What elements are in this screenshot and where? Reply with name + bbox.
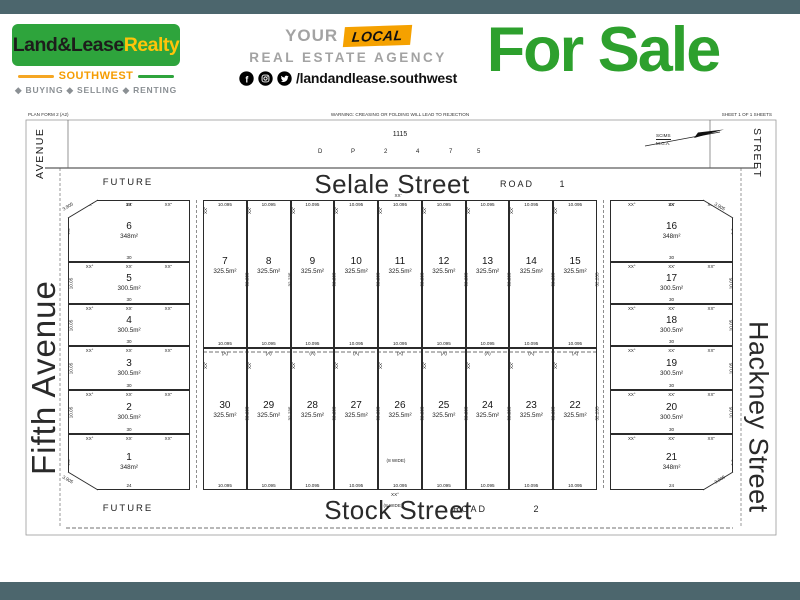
angle-mark: XX' — [668, 264, 675, 269]
lot-label: 23325.5m² — [510, 401, 552, 419]
angle-row: XX°XX'XX'' — [628, 392, 715, 397]
dp-char: 5 — [477, 149, 480, 155]
side-dim: 32.235 — [594, 406, 599, 420]
lot-label: 25325.5m² — [423, 401, 465, 419]
top-accent-bar — [0, 0, 800, 14]
frontage-dim: 10.095 — [204, 202, 246, 207]
frontage-dim: 30 — [611, 339, 732, 344]
plan-number: 1115 — [393, 131, 408, 138]
divider-line-orange — [18, 75, 54, 78]
agency-logo: Land&LeaseRealty SOUTHWEST ◆ BUYING ◆ SE… — [12, 24, 180, 96]
angle-mark: XX° — [86, 348, 94, 353]
angle-row: XX°XX'XX'' — [628, 306, 715, 311]
frontage-dim: 10.095 — [467, 202, 509, 207]
side-dim: 10.05 — [728, 363, 733, 375]
lot-cell: 9325.5m²10.09510.095XX'32.235 — [291, 200, 335, 348]
frontage-dim: 10.095 — [510, 341, 552, 346]
lot-number: 16 — [611, 222, 732, 233]
header: Land&LeaseRealty SOUTHWEST ◆ BUYING ◆ SE… — [0, 14, 800, 104]
lot-number: 20 — [611, 403, 732, 414]
angle-mark: XX' — [466, 362, 471, 369]
lot-cell: 2300.5m²XX°XX'XX''3010.05 — [68, 390, 190, 434]
lot-area: 300.5m² — [69, 414, 189, 421]
frontage-dim: 30 — [69, 255, 189, 260]
lot-area: 325.5m² — [292, 412, 334, 419]
dp-char: P — [351, 149, 355, 155]
angle-mark: XX' — [553, 362, 558, 369]
lot-label: 15325.5m² — [554, 257, 596, 275]
lot-label: 21348m² — [611, 435, 732, 489]
lot-number: 27 — [335, 401, 377, 412]
angle-mark: XX'' — [708, 392, 716, 397]
lot-number: 29 — [248, 401, 290, 412]
side-dim: 10.05 — [728, 407, 733, 419]
dp-char: D — [318, 149, 322, 155]
compass-label-scims: SCIMS — [656, 133, 671, 140]
frontage-dim: 10.095 — [554, 483, 596, 488]
frontage-dim: 30 — [69, 297, 189, 302]
angle-mark: XX° — [86, 264, 94, 269]
lot-number: 23 — [510, 401, 552, 412]
angle-mark: XX' — [126, 436, 133, 441]
angle-mark: XX' — [247, 207, 252, 214]
lot-label: 28325.5m² — [292, 401, 334, 419]
frontage-dim: 10.095 — [554, 341, 596, 346]
flyer: Land&LeaseRealty SOUTHWEST ◆ BUYING ◆ SE… — [0, 0, 800, 600]
angle-mark: XX' — [394, 193, 401, 198]
angle-mark: XX'' — [708, 348, 716, 353]
lot-cell: 19300.5m²XX°XX'XX''3010.05 — [610, 346, 733, 390]
logo-tagline: ◆ BUYING ◆ SELLING ◆ RENTING — [12, 85, 180, 96]
lot-number: 3 — [69, 359, 189, 370]
angle-mark: XX'' — [708, 436, 716, 441]
frontage-dim: 10.095 — [248, 202, 290, 207]
angle-mark: XX' — [291, 362, 296, 369]
lot-cell: 8325.5m²10.09510.095XX'32.235 — [247, 200, 291, 348]
lot-number: 22 — [554, 401, 596, 412]
dp-char: 2 — [384, 149, 387, 155]
lot-label: 12325.5m² — [423, 257, 465, 275]
angle-row: XX°XX'XX'' — [86, 264, 172, 269]
frontage-dim: 30 — [611, 427, 732, 432]
side-dim: 10.05 — [68, 278, 73, 290]
compass-label-mga: M.G.A. — [656, 141, 670, 146]
angle-mark: XX' — [334, 207, 339, 214]
logo-box: Land&LeaseRealty — [12, 24, 180, 66]
lot-cell: 13325.5m²10.09510.095XX'32.235 — [466, 200, 510, 348]
lot-label: 14325.5m² — [510, 257, 552, 275]
lot-label: 1348m² — [69, 435, 189, 489]
lot-cell: 17300.5m²XX°XX'XX''3010.05 — [610, 262, 733, 304]
bottom-accent-bar — [0, 582, 800, 600]
lot-area: 325.5m² — [248, 412, 290, 419]
frontage-dim: 10.095 — [467, 483, 509, 488]
frontage-dim: 30 — [611, 383, 732, 388]
lot-cell: 25325.5m²(A)10.095XX'32.235 — [422, 348, 466, 490]
frontage-dim: 10.095 — [379, 341, 421, 346]
angle-mark: XX° — [628, 306, 636, 311]
lot-number: 18 — [611, 316, 732, 327]
easement-mark: (A) — [248, 351, 290, 356]
lot-cell: 5300.5m²XX°XX'XX''3010.05 — [68, 262, 190, 304]
lot-area: 325.5m² — [379, 268, 421, 275]
lot-number: 11 — [379, 257, 421, 268]
lot-cell: 15325.5m²10.09510.095XX'32.235 — [553, 200, 597, 348]
angle-row: XX°XX'XX'' — [86, 436, 172, 441]
lot-label: 16348m² — [611, 201, 732, 261]
angle-mark: XX' — [334, 362, 339, 369]
social-row: f /landandlease.southwest — [243, 70, 453, 86]
frontage-dim: 10.095 — [335, 483, 377, 488]
angle-mark: XX' — [126, 264, 133, 269]
lot-number: 24 — [467, 401, 509, 412]
lot-area: 325.5m² — [335, 268, 377, 275]
lot-area: 325.5m² — [248, 268, 290, 275]
easement-mark: (A) — [335, 351, 377, 356]
lot-cell: 6348m²XX°XX'XX''24306.2 — [68, 200, 190, 262]
your-local-row: YOUR LOCAL — [243, 26, 453, 46]
side-dim: 10.05 — [728, 278, 733, 290]
frontage-dim: 10.095 — [292, 483, 334, 488]
frontage-dim: 10.095 — [248, 483, 290, 488]
lot-area: 325.5m² — [335, 412, 377, 419]
angle-mark: XX' — [291, 207, 296, 214]
angle-mark: XX' — [553, 207, 558, 214]
angle-row: XX°XX'XX'' — [86, 306, 172, 311]
angle-mark: XX' — [509, 207, 514, 214]
lot-number: 17 — [611, 274, 732, 285]
easement-mark: (A) — [423, 351, 465, 356]
lot-label: 24325.5m² — [467, 401, 509, 419]
lot-number: 25 — [423, 401, 465, 412]
lot-cell: 28325.5m²(A)10.095XX'32.235 — [291, 348, 335, 490]
lot-cell: 18300.5m²XX°XX'XX''3010.05 — [610, 304, 733, 346]
side-dim: 10.05 — [728, 320, 733, 332]
svg-text:f: f — [245, 74, 248, 84]
angle-mark: XX° — [628, 436, 636, 441]
lot-area: 300.5m² — [611, 370, 732, 377]
frontage-dim: 10.095 — [292, 341, 334, 346]
lot-area: 348m² — [69, 464, 189, 471]
logo-region-row: SOUTHWEST — [12, 70, 180, 82]
lot-cell: 27325.5m²(A)10.095XX'32.235 — [334, 348, 378, 490]
easement-mark: (A) — [510, 351, 552, 356]
logo-name-black: Land&Lease — [13, 34, 124, 57]
lot-area: 300.5m² — [611, 285, 732, 292]
lot-label: 10325.5m² — [335, 257, 377, 275]
frontage-dim: 10.095 — [467, 341, 509, 346]
frontage-dim: 10.095 — [379, 483, 421, 488]
angle-mark: XX° — [628, 264, 636, 269]
lot-number: 10 — [335, 257, 377, 268]
hackney-street-label: Hackney Street — [738, 298, 778, 535]
lot-cell: 4300.5m²XX°XX'XX''3010.05 — [68, 304, 190, 346]
instagram-icon[interactable] — [258, 71, 273, 86]
lot-label: 13325.5m² — [467, 257, 509, 275]
lot-area: 325.5m² — [292, 268, 334, 275]
easement-mark: (A) — [292, 351, 334, 356]
fifth-avenue-label: Fifth Avenue — [24, 253, 64, 503]
angle-mark: XX° — [628, 392, 636, 397]
lot-cell: 3300.5m²XX°XX'XX''3010.05 — [68, 346, 190, 390]
angle-mark: XX' — [668, 392, 675, 397]
lot-area: 348m² — [69, 233, 189, 240]
lot-number: 1 — [69, 453, 189, 464]
angle-mark: XX' — [466, 207, 471, 214]
lot-area: 325.5m² — [379, 412, 421, 419]
lot-area: 325.5m² — [467, 268, 509, 275]
lot-label: 6348m² — [69, 201, 189, 261]
road1-label: ROAD — [500, 179, 534, 189]
angle-mark: XX'' — [708, 264, 716, 269]
road2-label: ROAD — [453, 504, 487, 514]
logo-region: SOUTHWEST — [59, 70, 134, 82]
frontage-dim: 30 — [69, 383, 189, 388]
lot-area: 300.5m² — [611, 414, 732, 421]
angle-mark: XX' — [126, 348, 133, 353]
angle-mark: XX'' — [165, 306, 173, 311]
frontage-dim: 10.095 — [335, 341, 377, 346]
side-dim: 10.05 — [68, 320, 73, 332]
lot-number: 4 — [69, 316, 189, 327]
lot-area: 325.5m² — [510, 412, 552, 419]
agency-strapline: YOUR LOCAL REAL ESTATE AGENCY f /landand… — [243, 26, 453, 86]
lot-label: 11325.5m² — [379, 257, 421, 275]
lot-label: 8325.5m² — [248, 257, 290, 275]
angle-mark: XX' — [378, 362, 383, 369]
angle-mark: XX'' — [165, 348, 173, 353]
road1-number: 1 — [559, 179, 566, 189]
lot-cell: 16348m²XX°XX'XX''24306.2 — [610, 200, 733, 262]
easement-mark: (A) — [204, 351, 246, 356]
frontage-dim: 10.095 — [423, 483, 465, 488]
divider-line-green — [138, 75, 174, 78]
selale-street-label: Selale Street — [314, 169, 469, 200]
angle-mark: XX' — [668, 436, 675, 441]
lot-cell: 20300.5m²XX°XX'XX''3010.05 — [610, 390, 733, 434]
frontage-dim: 10.095 — [379, 202, 421, 207]
facebook-icon[interactable]: f — [239, 71, 254, 86]
angle-mark: XX' — [203, 207, 208, 214]
angle-row: XX°XX'XX'' — [628, 436, 715, 441]
lot-area: 325.5m² — [554, 412, 596, 419]
angle-mark: XX' — [126, 392, 133, 397]
easement-mark: (A) — [467, 351, 509, 356]
for-sale-headline: For Sale — [438, 14, 768, 86]
lot-label: 29325.5m² — [248, 401, 290, 419]
frontage-dim: 30 — [611, 255, 732, 260]
lot-number: 15 — [554, 257, 596, 268]
angle-mark: XX'' — [165, 436, 173, 441]
angle-mark: XX'' — [165, 392, 173, 397]
frontage-dim: 10.095 — [423, 202, 465, 207]
avenue-side-label: AVENUE — [27, 113, 53, 193]
warning-note: WARNING: CREASING OR FOLDING WILL LEAD T… — [331, 112, 469, 117]
angle-mark: XX° — [86, 306, 94, 311]
angle-mark: XX' — [668, 306, 675, 311]
lot-label: 9325.5m² — [292, 257, 334, 275]
your-label: YOUR — [285, 26, 338, 46]
easement-mark: (A) — [554, 351, 596, 356]
street-side-label: STREET — [744, 113, 770, 193]
lot-area: 325.5m² — [204, 268, 246, 275]
lot-number: 2 — [69, 403, 189, 414]
lot-area: 300.5m² — [69, 370, 189, 377]
easement-mark: (A) — [379, 351, 421, 356]
lot-area: 348m² — [611, 464, 732, 471]
lot-area: 300.5m² — [611, 327, 732, 334]
angle-row: XX°XX'XX'' — [628, 348, 715, 353]
survey-plan: PLAN FORM 2 (A2) WARNING: CREASING OR FO… — [0, 105, 800, 545]
twitter-icon[interactable] — [277, 71, 292, 86]
lot-number: 6 — [69, 222, 189, 233]
lot-label: 27325.5m² — [335, 401, 377, 419]
future-top-label: FUTURE — [103, 177, 154, 188]
lot-number: 14 — [510, 257, 552, 268]
lot-cell: 24325.5m²(A)10.095XX'32.235 — [466, 348, 510, 490]
social-handle[interactable]: /landandlease.southwest — [296, 70, 457, 86]
lot-area: 348m² — [611, 233, 732, 240]
lot-area: 325.5m² — [467, 412, 509, 419]
lot-cell: 21348m²XX°XX'XX''246.2 — [610, 434, 733, 490]
lot-area: 300.5m² — [69, 285, 189, 292]
lot-area: 300.5m² — [69, 327, 189, 334]
lot-cell: 7325.5m²10.09510.095XX'32.235 — [203, 200, 247, 348]
lot-cell: 23325.5m²(A)10.095XX'32.235 — [509, 348, 553, 490]
lot-cell: 10325.5m²10.09510.095XX'32.235 — [334, 200, 378, 348]
angle-mark: XX' — [203, 362, 208, 369]
frontage-dim: 10.095 — [510, 202, 552, 207]
frontage-dim: 10.095 — [204, 341, 246, 346]
dp-char: 4 — [416, 149, 419, 155]
frontage-dim: 30 — [69, 427, 189, 432]
angle-mark: XX' — [247, 362, 252, 369]
lot-cell: 14325.5m²10.09510.095XX'32.235 — [509, 200, 553, 348]
angle-row: XX°XX'XX'' — [628, 264, 715, 269]
lot-number: 26 — [379, 401, 421, 412]
angle-row: XX°XX'XX'' — [86, 348, 172, 353]
angle-mark: XX' — [422, 362, 427, 369]
lot-area: 325.5m² — [204, 412, 246, 419]
angle-row: XX°XX'XX'' — [86, 392, 172, 397]
lot-number: 12 — [423, 257, 465, 268]
local-badge: LOCAL — [343, 25, 412, 47]
lot-number: 9 — [292, 257, 334, 268]
lot-cell: 1348m²XX°XX'XX''246.2 — [68, 434, 190, 490]
angle-mark: XX' — [509, 362, 514, 369]
angle-mark: XX° — [628, 348, 636, 353]
lot-cell: 29325.5m²(A)10.095XX'32.235 — [247, 348, 291, 490]
lot-number: 19 — [611, 359, 732, 370]
lot-cell: 12325.5m²10.09510.095XX'32.235 — [422, 200, 466, 348]
lot-cell: 26325.5m²(A)10.095XX'32.235 — [378, 348, 422, 490]
angle-mark: XX' — [378, 207, 383, 214]
lot-cell: 30325.5m²(A)10.095XX'32.235 — [203, 348, 247, 490]
road2-number: 2 — [533, 504, 540, 514]
logo-name-yellow: Realty — [124, 34, 180, 57]
frontage-dim: 10.095 — [510, 483, 552, 488]
frontage-dim: 10.095 — [248, 341, 290, 346]
stock-street-label: Stock Street — [324, 495, 472, 526]
frontage-dim: 30 — [69, 339, 189, 344]
lot-cell: 22325.5m²(A)10.095XX'32.235 — [553, 348, 597, 490]
lot-area: 325.5m² — [423, 412, 465, 419]
lot-number: 5 — [69, 274, 189, 285]
angle-mark: XX° — [86, 392, 94, 397]
frontage-dim: 10.095 — [554, 202, 596, 207]
lot-number: 30 — [204, 401, 246, 412]
frontage-dim: 10.095 — [335, 202, 377, 207]
frontage-dim: 10.095 — [204, 483, 246, 488]
lot-label: 22325.5m² — [554, 401, 596, 419]
lot-cell: 11325.5m²10.09510.095XX'32.235 — [378, 200, 422, 348]
angle-mark: XX'' — [708, 306, 716, 311]
frontage-dim: 10.095 — [292, 202, 334, 207]
side-dim: 32.235 — [594, 272, 599, 286]
lot-area: 325.5m² — [510, 268, 552, 275]
side-dim: 10.05 — [68, 407, 73, 419]
lot-label: 7325.5m² — [204, 257, 246, 275]
angle-mark: XX' — [668, 348, 675, 353]
lot-number: 7 — [204, 257, 246, 268]
angle-mark: XX'' — [165, 264, 173, 269]
lot-number: 28 — [292, 401, 334, 412]
lot-label: 30325.5m² — [204, 401, 246, 419]
frontage-dim: 10.095 — [423, 341, 465, 346]
angle-mark: XX' — [126, 306, 133, 311]
angle-mark: XX' — [422, 207, 427, 214]
lot-number: 21 — [611, 453, 732, 464]
dp-char: 7 — [449, 149, 452, 155]
side-dim: 10.05 — [68, 363, 73, 375]
future-bottom-label: FUTURE — [103, 503, 154, 514]
angle-mark: XX° — [86, 436, 94, 441]
lot-area: 325.5m² — [554, 268, 596, 275]
lot-number: 13 — [467, 257, 509, 268]
real-estate-agency-label: REAL ESTATE AGENCY — [243, 50, 453, 65]
lot-area: 325.5m² — [423, 268, 465, 275]
frontage-dim: 30 — [611, 297, 732, 302]
lot-number: 8 — [248, 257, 290, 268]
lot-label: 26325.5m² — [379, 401, 421, 419]
